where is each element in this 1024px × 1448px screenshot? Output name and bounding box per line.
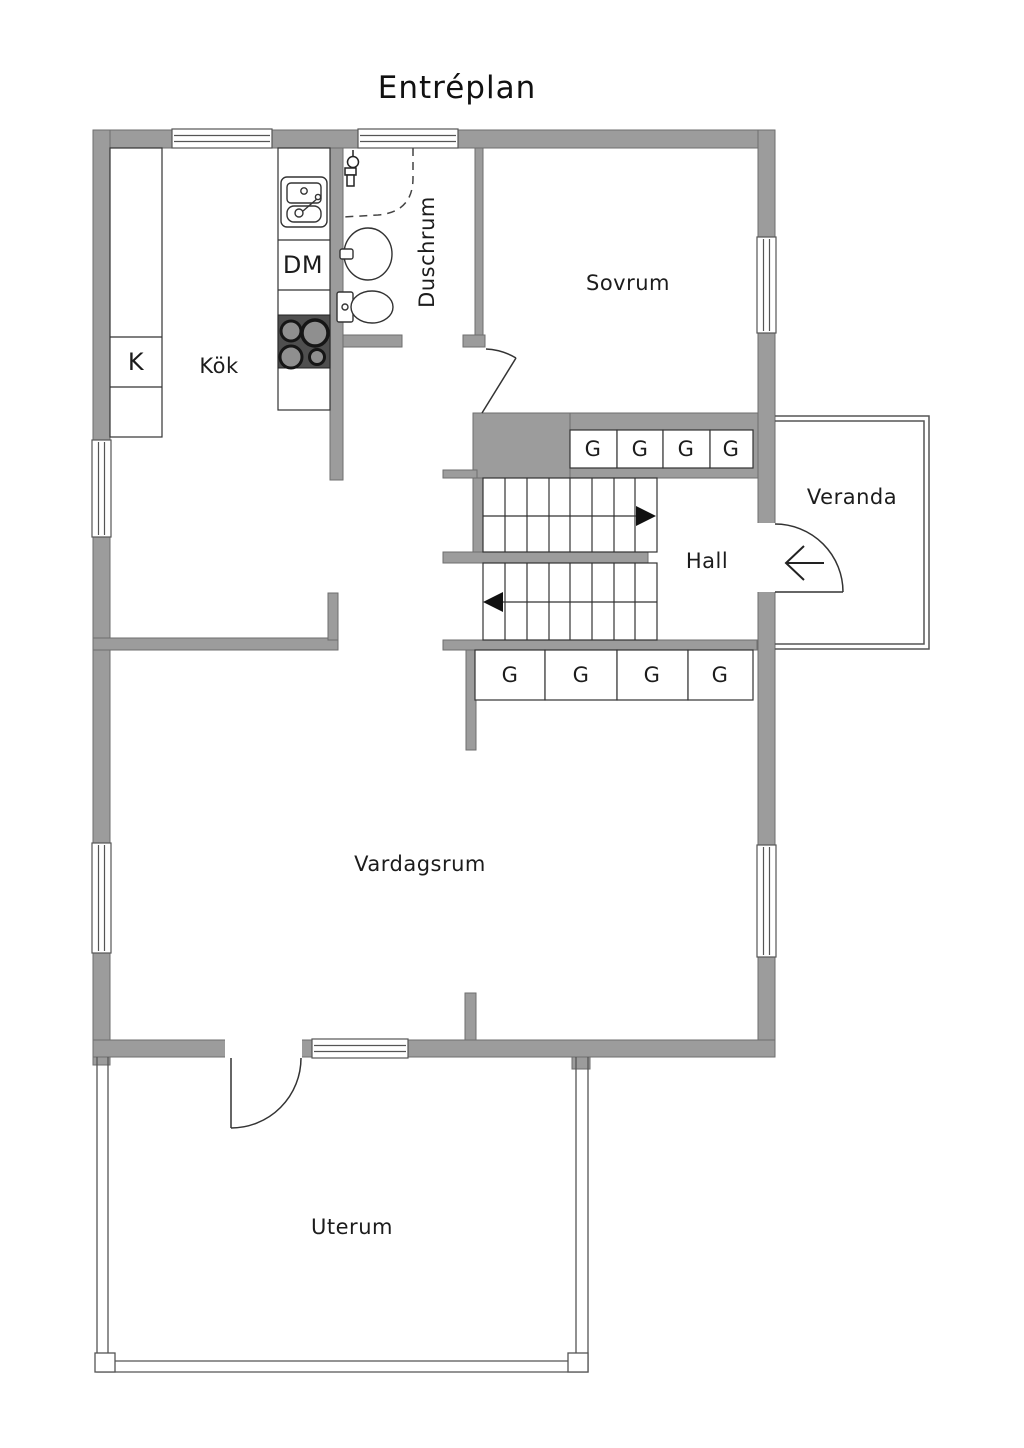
wall-stair-top-strip xyxy=(443,470,477,478)
wash-basin xyxy=(340,228,392,280)
toilet xyxy=(337,291,393,323)
room-label-living: Vardagsrum xyxy=(354,852,486,876)
wall-landing-block xyxy=(473,413,570,478)
wall-stub-uterum-right xyxy=(572,1057,590,1069)
door-uterum xyxy=(231,1058,301,1128)
wall-stair-middle xyxy=(443,552,648,563)
entrance-arrow xyxy=(786,546,824,580)
window-top-shower xyxy=(358,129,458,148)
wall-bottom xyxy=(93,1040,775,1057)
window-top-kitchen xyxy=(172,129,272,148)
window-right-bedroom xyxy=(757,237,776,333)
floor-plan-drawing xyxy=(0,0,1024,1448)
closet-label: G xyxy=(678,437,695,461)
closet-label: G xyxy=(644,663,661,687)
wall-bedroom-west xyxy=(475,148,483,335)
window-left-kitchen xyxy=(92,440,111,537)
closet-label: G xyxy=(723,437,740,461)
closet-label: G xyxy=(712,663,729,687)
room-label-bedroom: Sovrum xyxy=(586,271,670,295)
stove xyxy=(278,315,330,368)
opening-entrance xyxy=(756,523,777,592)
room-label-kitchen: Kök xyxy=(199,354,238,378)
veranda-structure xyxy=(775,416,929,649)
wall-notch xyxy=(463,335,485,347)
floor-plan: Entréplan Kök Duschrum Sovrum Hall Veran… xyxy=(0,0,1024,1448)
closet-label: G xyxy=(632,437,649,461)
room-label-uterum: Uterum xyxy=(311,1215,393,1239)
wall-stair-bottom xyxy=(443,640,757,650)
page-title: Entréplan xyxy=(378,70,536,106)
wall-shower-bottom xyxy=(343,335,402,347)
window-right-living xyxy=(757,845,776,957)
wall-kitchen-bottom xyxy=(93,638,338,650)
wall-kitchen-stub xyxy=(328,593,338,640)
shower-fixture xyxy=(345,150,359,186)
door-bedroom xyxy=(482,349,516,413)
closet-label: G xyxy=(573,663,590,687)
counter-left xyxy=(110,148,162,437)
opening-uterum xyxy=(225,1039,302,1058)
fridge-label: K xyxy=(128,348,144,376)
dishwasher-label: DM xyxy=(283,251,323,279)
closet-label: G xyxy=(502,663,519,687)
door-entrance xyxy=(775,524,843,592)
closet-label: G xyxy=(585,437,602,461)
room-label-hall: Hall xyxy=(686,549,728,573)
window-left-living xyxy=(92,843,111,953)
wall-stub-living-room xyxy=(465,993,476,1040)
window-bottom-living xyxy=(312,1039,408,1058)
kitchen-sink xyxy=(281,177,327,227)
wall-stair-left xyxy=(473,478,483,553)
room-label-shower: Duschrum xyxy=(415,196,439,308)
room-label-veranda: Veranda xyxy=(807,485,897,509)
